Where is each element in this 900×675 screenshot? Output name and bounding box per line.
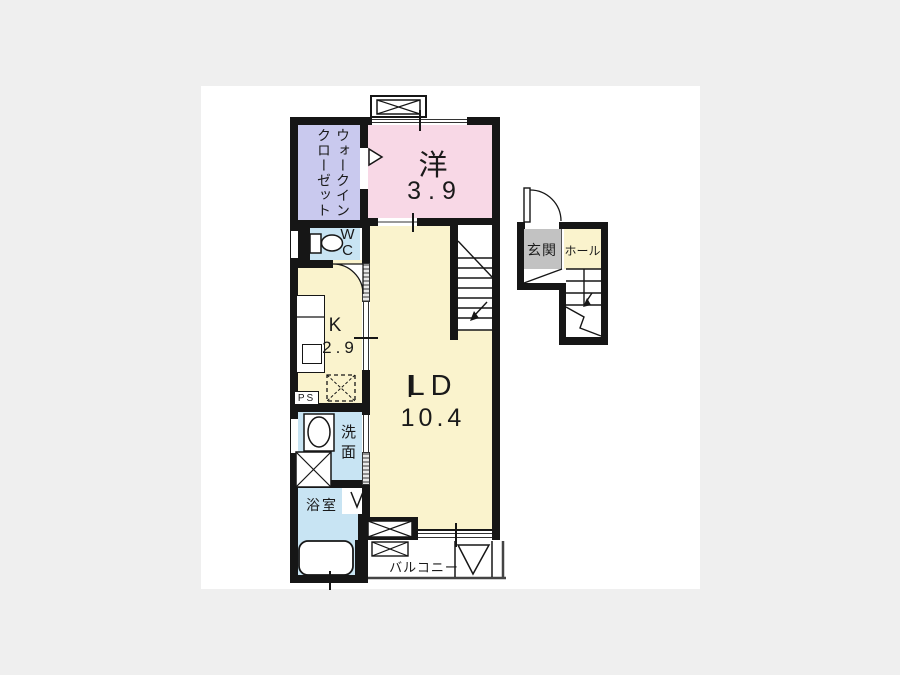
wall-closet-divider-lower: [360, 189, 368, 220]
wall-kitchen-ld-upper: [362, 226, 370, 263]
doorway-entrance: [525, 222, 559, 229]
wall-right: [492, 117, 500, 540]
wall-stair-enclosure: [450, 225, 458, 340]
sliding-door-washroom: [362, 452, 370, 485]
window-slot-wc: [291, 231, 298, 258]
window-slot-washroom: [291, 419, 298, 453]
wall-bathroom-bottom: [290, 575, 360, 583]
wall-western-bottom-left: [360, 218, 378, 226]
window-top-band: [372, 117, 467, 125]
sliding-door-kitchen: [362, 263, 370, 302]
doorway-western: [378, 218, 417, 226]
wall-wc-leftblock: [298, 228, 310, 260]
stairs-main-area: [458, 225, 492, 330]
track-washroom: [363, 415, 369, 452]
balcony-label: バルコニー: [378, 557, 470, 576]
wc-label: WC: [339, 227, 356, 259]
window-top-box: [370, 95, 427, 118]
ps-label: PS: [294, 391, 319, 405]
wall-wc-bottom: [290, 260, 333, 268]
room-kitchen-doorpatch: [333, 260, 362, 270]
floorplan-image: ウォークイン クローゼット 洋 3.9 WC K 2.9 LD 10.4 PS …: [0, 0, 900, 675]
wall-closet-divider-upper: [360, 125, 368, 148]
wall-stairbox-bottom: [559, 337, 608, 345]
wall-ld-bottom-bar: [360, 517, 418, 540]
counter-opening-kitchen: [363, 302, 369, 370]
hall-label: ホール: [563, 242, 602, 259]
entrance-label: 玄関: [521, 240, 563, 260]
ld-label: LD: [400, 370, 466, 403]
western-room-size: 3.9: [395, 177, 475, 206]
closet-label-col2: クローゼット: [314, 128, 334, 228]
wall-washroom-bathroom: [290, 480, 362, 488]
bath-door-patch: [342, 488, 362, 514]
wall-kitchen-ld-mid: [362, 370, 370, 415]
washroom-label: 洗面: [340, 423, 357, 462]
wall-stairbox-left: [559, 283, 566, 345]
ld-size: 10.4: [385, 404, 481, 433]
kitchen-size: 2.9: [316, 338, 364, 358]
bathroom-label: 浴室: [300, 495, 344, 515]
window-ld-bottom: [418, 530, 492, 540]
wall-entrance-right: [601, 222, 608, 345]
closet-label-col1: ウォークイン: [333, 128, 353, 228]
kitchen-label: K: [320, 315, 350, 337]
